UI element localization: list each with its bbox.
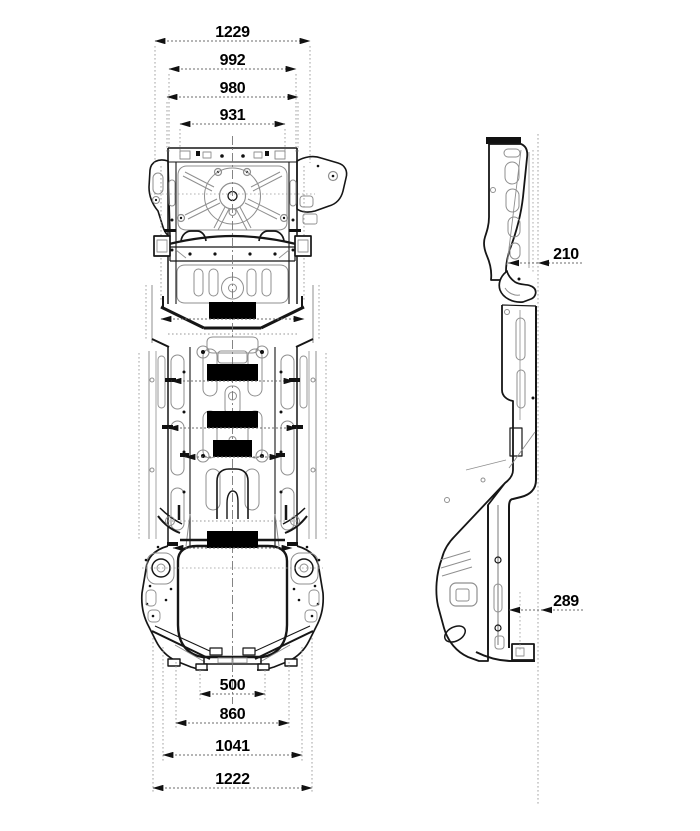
dim-500: 500 (200, 670, 265, 700)
rear-bracket-left (149, 160, 170, 236)
underbody-dimension-diagram-page: 1229 992 980 931 1200 1065 (0, 0, 700, 831)
side-view (436, 134, 538, 806)
dim-label-931: 931 (220, 107, 246, 124)
dim-label-289: 289 (553, 593, 579, 610)
side-front-apron (436, 483, 505, 661)
dim-label-1041: 1041 (215, 738, 250, 755)
side-waist-bracket (499, 271, 535, 302)
dim-label-1222: 1222 (215, 771, 250, 788)
dim-label-500: 500 (220, 677, 246, 694)
dim-label-834: 834 (220, 441, 246, 458)
side-bottom-step (512, 644, 534, 660)
dim-931: 931 (180, 107, 285, 158)
side-upper-pillar (484, 144, 527, 280)
dim-860: 860 (176, 662, 289, 729)
dim-1076: 1076 (168, 411, 297, 429)
dim-label-992: 992 (220, 52, 246, 69)
dim-834: 834 (185, 440, 280, 458)
dim-label-860: 860 (220, 706, 246, 723)
plan-left-half (139, 148, 233, 670)
dim-label-1200: 1200 (215, 303, 250, 320)
dim-label-1013: 1013 (215, 532, 250, 549)
dim-label-980: 980 (220, 80, 246, 97)
dim-label-210: 210 (553, 246, 579, 263)
dim-label-1065: 1065 (215, 365, 250, 382)
dim-label-1076: 1076 (215, 412, 250, 429)
plan-right-half (232, 148, 326, 670)
dim-label-1229: 1229 (215, 24, 250, 41)
underbody-dimensions-figure: 1229 992 980 931 1200 1065 (0, 0, 700, 831)
side-top-cap (486, 137, 521, 144)
